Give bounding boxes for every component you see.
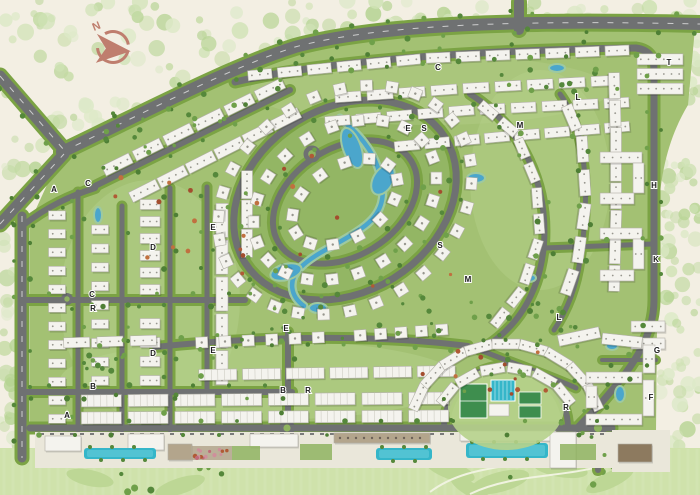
tree-icon (441, 34, 445, 38)
tree-icon (514, 377, 517, 380)
tree-icon (73, 433, 77, 437)
tree-icon (301, 316, 305, 320)
tree-icon (421, 372, 425, 376)
zone-marker-G: G (654, 346, 660, 355)
strip-building (618, 444, 652, 462)
zone-marker-A: A (51, 185, 57, 194)
zone-marker-C: C (89, 290, 95, 299)
tree-icon (645, 363, 649, 367)
tree-icon (382, 1, 392, 11)
tree-icon (241, 253, 246, 258)
tree-icon (449, 418, 453, 422)
zone-marker-C: C (85, 179, 91, 188)
tree-icon (126, 339, 130, 343)
tree-icon (568, 238, 574, 244)
building (49, 303, 67, 314)
tree-icon (11, 438, 16, 443)
tree-icon (47, 291, 51, 295)
tree-icon (506, 315, 512, 321)
building (608, 238, 621, 266)
building (586, 414, 643, 427)
zone-marker-D: D (150, 349, 156, 358)
tree-icon (31, 224, 35, 228)
tree-icon (108, 368, 114, 374)
tree-icon (664, 221, 674, 231)
zone-marker-R: R (305, 386, 311, 395)
building (277, 65, 303, 79)
tree-icon (475, 0, 489, 14)
tree-icon (82, 361, 86, 365)
tree-icon (165, 18, 180, 33)
zone-marker-E: E (283, 324, 289, 333)
tree-icon (186, 249, 191, 254)
tree-icon (83, 383, 88, 388)
tree-icon (201, 91, 207, 97)
tree-icon (20, 113, 26, 119)
building (633, 239, 645, 271)
tree-icon (481, 457, 485, 461)
tree-icon (222, 39, 236, 53)
tree-icon (245, 397, 249, 401)
tree-icon (211, 356, 215, 360)
tree-icon (242, 234, 246, 238)
tree-icon (329, 56, 334, 61)
strip-building (168, 444, 192, 460)
tree-icon (192, 116, 197, 121)
tree-icon (510, 42, 514, 46)
tree-icon (272, 246, 277, 251)
tree-icon (108, 432, 113, 437)
tree-icon (627, 376, 632, 381)
tree-icon (656, 53, 662, 59)
tree-icon (576, 113, 580, 117)
lake (549, 64, 565, 72)
building (49, 211, 67, 222)
tree-icon (525, 457, 529, 461)
tree-icon (581, 40, 586, 45)
tree-icon (634, 52, 640, 58)
tree-icon (36, 432, 42, 438)
tree-icon (397, 263, 402, 268)
tree-icon (335, 215, 339, 219)
tree-icon (517, 153, 521, 157)
tree-icon (10, 196, 14, 200)
tree-icon (659, 200, 663, 204)
building (637, 69, 684, 82)
tree-icon (178, 335, 184, 341)
tree-icon (349, 23, 354, 28)
tree-icon (671, 257, 679, 265)
tree-icon (232, 22, 249, 39)
tree-icon (162, 375, 167, 380)
tree-icon (379, 419, 384, 424)
tree-icon (171, 245, 175, 249)
tree-icon (278, 226, 282, 230)
tree-icon (64, 71, 74, 81)
tree-icon (632, 3, 644, 15)
tree-icon (348, 134, 352, 138)
tree-icon (664, 183, 675, 194)
building (609, 128, 622, 155)
tree-icon (504, 338, 508, 342)
tree-icon (217, 433, 221, 437)
tree-icon (672, 319, 681, 328)
tree-icon (641, 236, 645, 240)
tree-icon (275, 86, 281, 92)
tree-icon (423, 240, 427, 244)
tree-icon (344, 108, 348, 112)
building (633, 163, 645, 195)
tree-icon (196, 16, 203, 23)
tree-icon (147, 487, 154, 494)
tree-icon (64, 396, 70, 402)
tree-icon (174, 357, 179, 362)
tree-icon (313, 29, 319, 35)
tree-icon (244, 191, 248, 195)
building (607, 73, 621, 101)
tree-icon (116, 124, 120, 128)
zone-marker-R: R (90, 304, 96, 313)
tree-icon (234, 77, 239, 82)
zone-marker-M: M (517, 121, 524, 130)
tree-icon (520, 372, 526, 378)
tree-icon (162, 350, 167, 355)
tree-icon (113, 194, 117, 198)
tree-icon (564, 54, 568, 58)
tree-icon (672, 430, 683, 441)
tree-icon (642, 0, 657, 15)
tree-icon (401, 302, 404, 305)
tree-icon (136, 169, 141, 174)
building (286, 207, 300, 222)
tree-icon (605, 382, 610, 387)
tree-icon (174, 249, 179, 254)
tree-icon (402, 49, 406, 53)
tree-icon (510, 392, 514, 396)
tree-icon (255, 201, 260, 206)
building (49, 396, 67, 407)
building (49, 377, 67, 388)
tree-icon (442, 397, 446, 401)
tree-icon (132, 445, 136, 449)
building (373, 366, 412, 379)
building (92, 244, 110, 255)
building (600, 270, 635, 283)
tree-icon (443, 232, 449, 238)
tree-icon (273, 268, 278, 273)
tree-icon (120, 356, 123, 359)
tree-icon (34, 50, 47, 63)
tree-icon (55, 62, 65, 72)
tree-icon (235, 419, 239, 423)
tree-icon (114, 393, 118, 397)
tree-icon (116, 97, 129, 110)
building (429, 172, 442, 185)
tree-icon (263, 12, 279, 28)
zone-marker-S: S (437, 241, 443, 250)
tree-icon (690, 204, 699, 213)
tree-icon (263, 383, 267, 387)
tree-icon (456, 58, 462, 64)
tree-icon (47, 383, 51, 387)
tree-icon (492, 57, 497, 62)
tree-icon (449, 273, 452, 276)
zone-marker-D: D (150, 243, 156, 252)
building (586, 386, 598, 410)
tree-icon (161, 410, 167, 416)
tree-icon (536, 301, 541, 306)
tree-icon (546, 200, 550, 204)
tree-icon (459, 198, 463, 202)
building (363, 153, 377, 166)
zone-marker-S: S (421, 124, 427, 133)
tree-icon (226, 205, 230, 209)
tree-icon (155, 292, 159, 296)
tree-icon (12, 259, 16, 263)
tree-icon (661, 234, 676, 249)
tree-icon (12, 295, 16, 299)
tree-icon (70, 114, 77, 121)
building (362, 392, 403, 406)
tree-icon (658, 235, 663, 240)
tree-icon (322, 282, 328, 288)
tree-icon (508, 475, 513, 480)
tree-icon (689, 87, 698, 96)
tree-icon (420, 184, 426, 190)
tree-icon (456, 349, 461, 354)
tree-icon (192, 123, 196, 127)
tree-icon (440, 210, 445, 215)
tree-icon (609, 363, 614, 368)
zone-marker-B: B (280, 386, 286, 395)
tree-icon (569, 325, 573, 329)
tree-icon (100, 304, 105, 309)
tree-icon (675, 277, 690, 292)
tree-icon (290, 184, 295, 189)
tree-icon (559, 420, 564, 425)
building (351, 114, 366, 128)
building (324, 237, 339, 252)
tree-icon (342, 343, 346, 347)
tree-icon (488, 387, 493, 392)
tree-icon (278, 78, 282, 82)
tree-icon (282, 309, 287, 314)
tree-icon (391, 285, 395, 289)
tree-icon (319, 294, 323, 298)
tree-icon (28, 241, 32, 245)
building (586, 372, 643, 385)
tree-icon (141, 117, 144, 120)
tree-icon (208, 304, 214, 310)
tree-icon (70, 307, 74, 311)
tree-icon (161, 194, 167, 200)
building (366, 57, 392, 71)
tree-icon (219, 453, 222, 456)
tree-icon (208, 450, 211, 453)
tree-icon (0, 328, 8, 336)
tree-icon (213, 172, 219, 178)
tree-icon (273, 283, 277, 287)
tree-icon (137, 305, 141, 309)
tree-icon (104, 129, 110, 135)
zone-marker-K: K (653, 255, 659, 264)
tree-icon (666, 266, 678, 278)
tree-icon (530, 12, 534, 16)
tree-icon (11, 12, 20, 21)
tree-icon (593, 67, 599, 73)
tree-icon (257, 67, 263, 73)
tree-icon (279, 411, 284, 416)
tree-icon (227, 292, 231, 296)
tree-icon (125, 302, 130, 307)
tree-icon (247, 277, 252, 282)
tree-icon (523, 419, 527, 423)
tree-icon (341, 337, 344, 340)
tree-icon (127, 326, 130, 329)
tree-icon (407, 221, 412, 226)
tree-icon (656, 30, 661, 35)
tree-icon (378, 276, 383, 281)
tree-icon (371, 284, 374, 287)
tree-icon (95, 363, 101, 369)
tree-icon (88, 445, 92, 449)
tree-icon (345, 264, 350, 269)
tree-icon (626, 352, 632, 358)
tree-icon (440, 145, 446, 151)
tree-icon (402, 445, 406, 449)
tree-icon (285, 9, 300, 24)
building (49, 229, 67, 240)
tree-icon (145, 255, 149, 259)
tree-icon (130, 51, 146, 67)
tree-icon (82, 217, 87, 222)
tree-icon (279, 338, 285, 344)
tree-icon (369, 39, 375, 45)
building (81, 412, 122, 426)
tree-icon (172, 144, 176, 148)
tree-icon (218, 119, 222, 123)
tree-icon (377, 322, 383, 328)
tree-icon (132, 135, 137, 140)
tree-icon (233, 122, 238, 127)
building (415, 325, 429, 339)
tree-icon (348, 67, 354, 73)
tree-icon (497, 333, 501, 337)
tree-icon (283, 172, 288, 177)
tree-icon (118, 175, 123, 180)
tree-icon (531, 303, 534, 306)
tree-icon (469, 301, 472, 304)
building (213, 209, 227, 223)
tree-icon (70, 415, 74, 419)
tree-icon (167, 181, 171, 185)
tree-icon (543, 388, 548, 393)
tree-icon (489, 372, 493, 376)
tree-icon (166, 106, 171, 111)
zone-marker-L: L (576, 93, 581, 102)
tree-icon (144, 145, 147, 148)
building (49, 248, 67, 259)
tree-icon (368, 280, 373, 285)
tree-icon (155, 66, 163, 74)
tree-icon (420, 61, 425, 66)
building (140, 268, 161, 280)
tree-icon (127, 419, 132, 424)
tree-icon (603, 453, 607, 457)
tree-icon (481, 338, 485, 342)
building (396, 54, 422, 68)
tree-icon (588, 222, 593, 227)
tree-icon (199, 230, 203, 234)
strip-building (45, 436, 81, 451)
tree-icon (572, 379, 576, 383)
tree-icon (357, 245, 363, 251)
tree-icon (121, 458, 125, 462)
tree-icon (409, 114, 415, 120)
tree-icon (91, 358, 96, 363)
tree-icon (525, 287, 529, 291)
building (389, 173, 404, 188)
tree-icon (191, 291, 196, 296)
building (464, 177, 478, 191)
building (175, 394, 216, 408)
tree-icon (225, 449, 228, 452)
zone-marker-F: F (649, 393, 654, 402)
tree-icon (527, 55, 533, 61)
tree-icon (391, 459, 395, 463)
tree-icon (657, 369, 665, 377)
tree-icon (126, 231, 130, 235)
tree-icon (590, 435, 594, 439)
building (307, 63, 333, 77)
tree-icon (70, 199, 74, 203)
tree-icon (201, 138, 205, 142)
tree-icon (28, 385, 32, 389)
tree-icon (12, 403, 17, 408)
building (214, 277, 228, 312)
tree-icon (197, 448, 200, 451)
tree-icon (385, 279, 390, 284)
building (530, 187, 543, 209)
tree-icon (365, 52, 370, 57)
tree-icon (525, 26, 530, 31)
tree-icon (503, 363, 507, 367)
building (608, 100, 622, 128)
building (222, 394, 263, 408)
tree-icon (131, 485, 138, 492)
tree-icon (81, 396, 86, 401)
tree-icon (298, 253, 302, 257)
tree-icon (222, 116, 227, 121)
tree-icon (323, 98, 327, 102)
tree-icon (156, 199, 161, 204)
tree-icon (34, 169, 39, 174)
building (354, 329, 368, 343)
tree-icon (199, 419, 204, 424)
tree-icon (306, 342, 311, 347)
tree-icon (227, 383, 231, 387)
tree-icon (9, 35, 17, 43)
tree-icon (252, 331, 256, 335)
planted-court (300, 444, 332, 460)
building (242, 335, 256, 348)
tree-icon (300, 53, 304, 57)
tree-icon (230, 6, 243, 19)
building (92, 263, 110, 274)
tree-icon (674, 11, 679, 16)
tree-icon (166, 63, 173, 70)
tree-icon (38, 13, 55, 30)
